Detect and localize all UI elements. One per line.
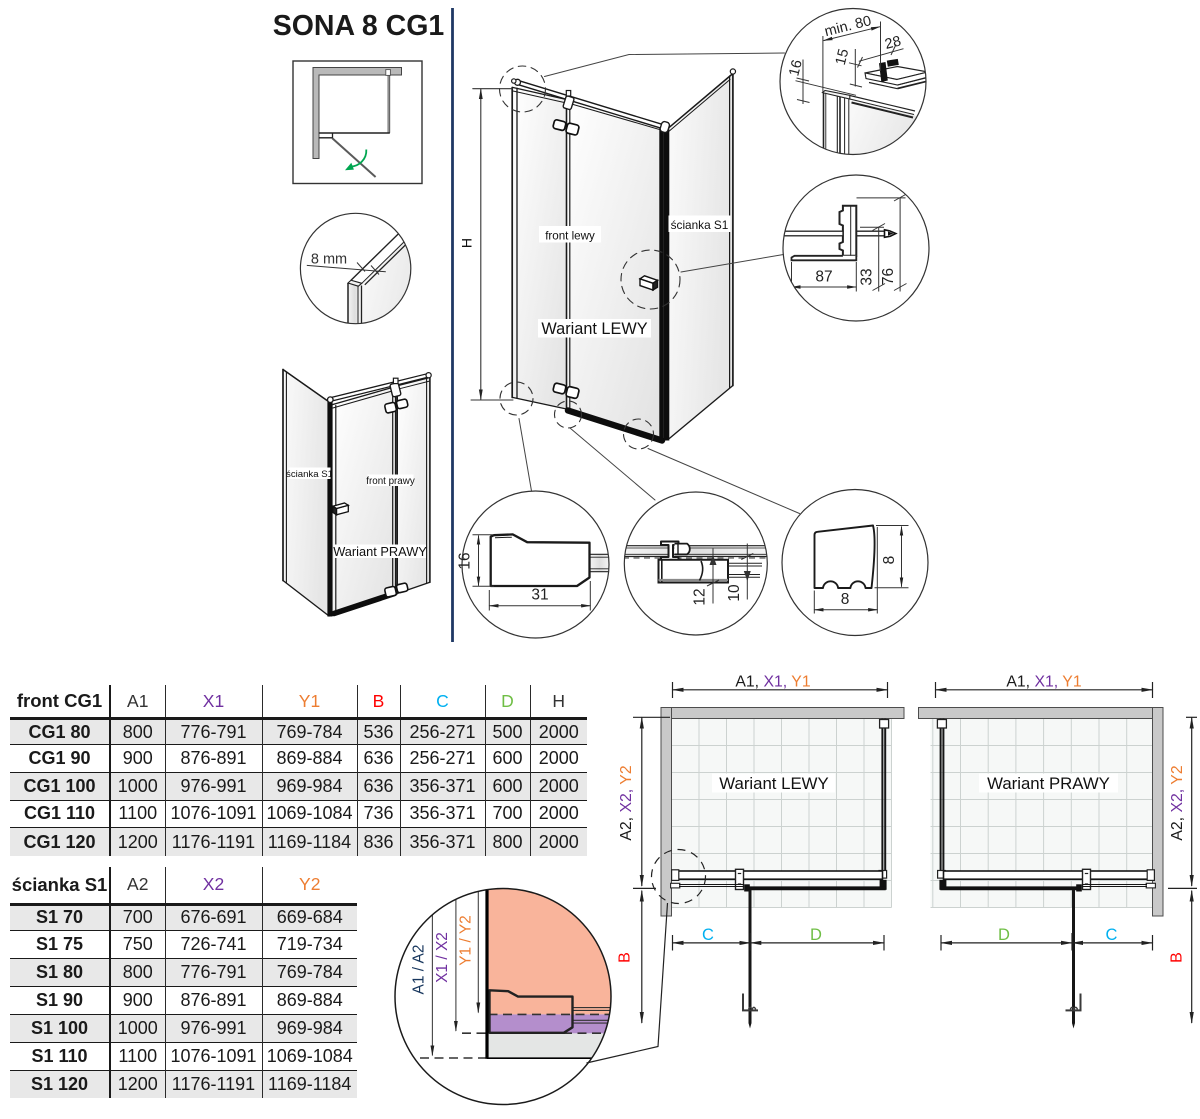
svg-text:C: C [1106,926,1118,944]
svg-text:H: H [459,238,475,248]
svg-text:A1, X1, Y1: A1, X1, Y1 [735,674,810,691]
svg-text:ścianka S1: ścianka S1 [671,218,729,232]
svg-text:Wariant LEWY: Wariant LEWY [541,320,647,338]
svg-text:33: 33 [859,268,876,285]
svg-text:Wariant LEWY: Wariant LEWY [719,774,828,793]
svg-text:X1 / X2: X1 / X2 [434,932,451,983]
svg-text:front prawy: front prawy [366,476,415,487]
svg-text:Wariant PRAWY: Wariant PRAWY [987,774,1110,793]
svg-text:C: C [702,926,714,944]
svg-text:ścianka S1: ścianka S1 [286,469,333,480]
svg-text:D: D [810,926,822,944]
svg-text:A2, X2, Y2: A2, X2, Y2 [618,765,635,840]
svg-text:8: 8 [841,591,850,608]
svg-text:Wariant PRAWY: Wariant PRAWY [333,544,427,559]
svg-text:76: 76 [880,268,897,285]
svg-text:8 mm: 8 mm [311,252,347,268]
svg-text:Y1 / Y2: Y1 / Y2 [457,915,474,966]
svg-text:10: 10 [726,584,743,602]
svg-text:16: 16 [457,552,474,569]
svg-text:SONA 8 CG1: SONA 8 CG1 [273,10,445,42]
svg-text:15: 15 [833,47,852,67]
svg-text:A1 / A2: A1 / A2 [411,945,428,995]
svg-text:D: D [998,926,1010,944]
svg-text:8: 8 [881,556,898,565]
svg-text:B: B [1169,952,1186,963]
svg-text:min. 80: min. 80 [823,13,873,40]
svg-text:B: B [617,952,634,963]
svg-text:A1, X1, Y1: A1, X1, Y1 [1006,674,1081,691]
svg-text:31: 31 [531,587,548,604]
svg-text:87: 87 [815,269,832,286]
svg-text:12: 12 [692,588,709,605]
svg-text:A2, X2, Y2: A2, X2, Y2 [1169,765,1186,840]
svg-text:front lewy: front lewy [545,230,595,243]
